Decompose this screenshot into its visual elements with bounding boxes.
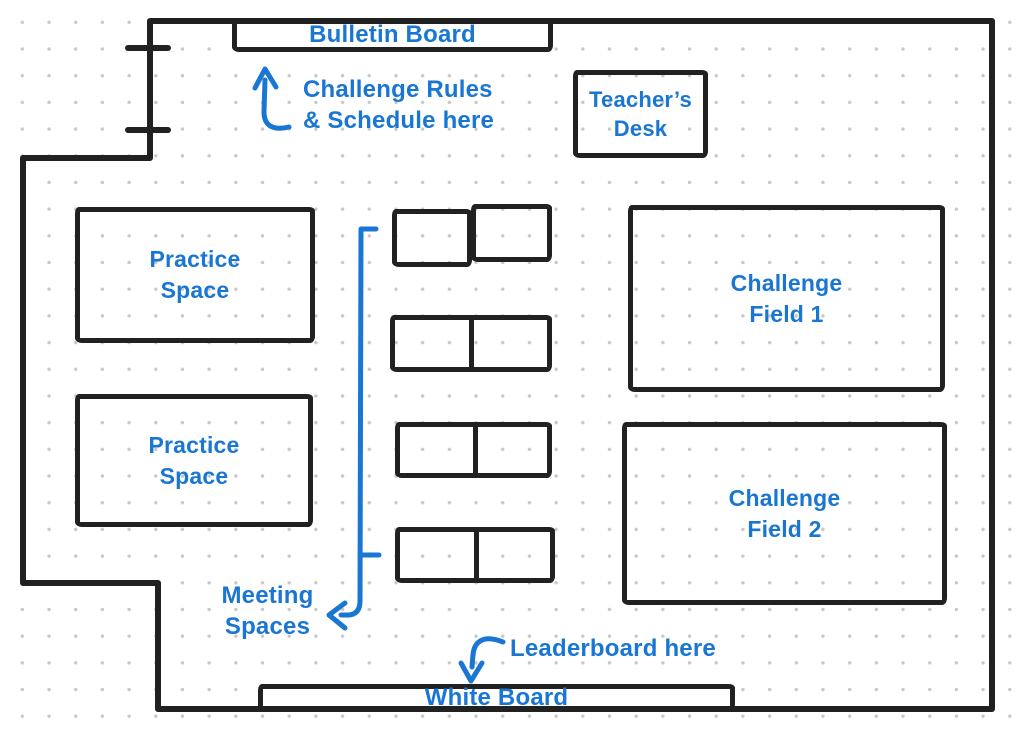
meeting-table <box>395 422 552 478</box>
floor-plan: Bulletin Board Teacher’s Desk Practice S… <box>0 0 1018 736</box>
meeting-table <box>392 209 472 267</box>
meeting-table <box>395 527 555 583</box>
challenge-field-2: Challenge Field 2 <box>622 422 947 605</box>
bulletin-board: Bulletin Board <box>232 18 553 52</box>
bulletin-board-label: Bulletin Board <box>309 23 476 47</box>
meeting-spaces-bracket-arrow-icon <box>329 229 379 628</box>
white-board-label: White Board <box>425 686 569 710</box>
practice-space-1: Practice Space <box>75 207 315 343</box>
teachers-desk-label: Teacher’s Desk <box>589 85 692 143</box>
rules-schedule-note: Challenge Rules & Schedule here <box>303 74 494 136</box>
meeting-spaces-note: Meeting Spaces <box>200 580 335 642</box>
meeting-table <box>471 204 552 262</box>
practice-space-2-label: Practice Space <box>148 430 239 492</box>
leaderboard-note: Leaderboard here <box>510 633 716 664</box>
practice-space-2: Practice Space <box>75 394 313 527</box>
meeting-table <box>390 315 552 372</box>
table-divider <box>474 530 479 580</box>
challenge-field-1: Challenge Field 1 <box>628 205 945 392</box>
white-board: White Board <box>258 684 735 711</box>
down-arrow-icon <box>461 639 503 681</box>
table-divider <box>469 318 474 369</box>
teachers-desk: Teacher’s Desk <box>573 70 708 158</box>
challenge-field-2-label: Challenge Field 2 <box>729 483 841 545</box>
table-divider <box>473 425 478 475</box>
challenge-field-1-label: Challenge Field 1 <box>731 268 843 330</box>
practice-space-1-label: Practice Space <box>149 244 240 306</box>
up-arrow-icon <box>255 69 289 128</box>
door-tick-marks <box>128 48 168 130</box>
